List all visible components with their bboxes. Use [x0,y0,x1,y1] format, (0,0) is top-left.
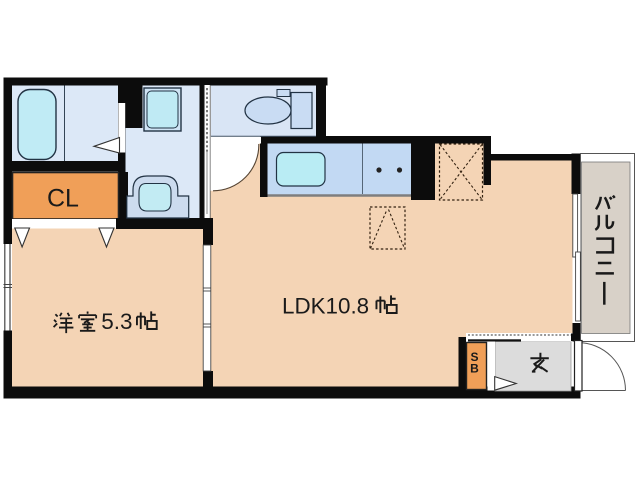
svg-text:5.3: 5.3 [101,309,132,334]
svg-text:CL: CL [47,185,79,213]
svg-text:LDK10.8: LDK10.8 [282,294,369,319]
svg-text:B: B [470,362,479,376]
